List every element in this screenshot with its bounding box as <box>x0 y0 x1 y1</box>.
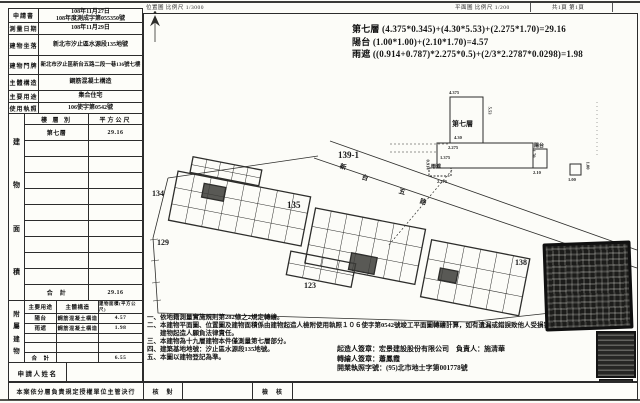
annex-cell: 鋼筋混凝土構造 <box>57 324 99 333</box>
area-header-floor: 樓 層 別 <box>25 114 89 124</box>
field-label: 建物坐落 <box>9 35 39 55</box>
field-value: 106使字第0542號 <box>39 103 142 113</box>
page-count-label: 共1頁 第1頁 <box>552 3 584 11</box>
area-cell-floor <box>25 269 89 284</box>
area-cell-sqm <box>89 189 142 204</box>
field-value: 新北市汐止區新台五路二段一巷136號七樓 <box>39 56 142 74</box>
area-table-row <box>25 269 142 285</box>
area-cell-sqm <box>89 221 142 236</box>
field-value: 鋼筋混凝土構造 <box>39 75 142 90</box>
calc-line: 第七層 (4.375*0.345)+(4.30*5.53)+(2.275*1.7… <box>352 23 638 36</box>
area-cell-sqm <box>89 205 142 220</box>
area-table-header: 樓 層 別平方公尺 <box>25 114 142 125</box>
annex-table-row: 合 計6.55 <box>25 353 142 362</box>
area-cell-floor: 第七層 <box>25 125 89 140</box>
annex-header-cell: 主要用途 <box>25 301 57 313</box>
calc-line: 陽台 (1.00*1.00)+(2.10*1.70)=4.57 <box>352 36 638 49</box>
area-cell-sqm <box>89 269 142 284</box>
area-cell-floor <box>25 157 89 172</box>
field-value-line: 集合住宅 <box>78 93 102 100</box>
area-cell-sqm <box>89 253 142 268</box>
annex-table-row: 陽台鋼筋混凝土構造4.57 <box>25 314 142 324</box>
area-table-row <box>25 237 142 253</box>
field-value-line: 106使字第0542號 <box>68 105 113 112</box>
area-cell-sqm <box>89 237 142 252</box>
area-cell-sqm: 29.16 <box>89 125 142 140</box>
side-label-char: 物 <box>13 345 20 355</box>
field-label: 建物門牌 <box>9 56 39 74</box>
field-value-line: 新北市汐止區新台五路二段一巷136號七樓 <box>41 62 141 69</box>
check-label: 核 對 <box>144 383 183 399</box>
annex-side-label: 附屬建物 <box>9 301 25 362</box>
area-table-row <box>25 221 142 237</box>
annex-cell <box>99 334 142 343</box>
floor-area-rows: 樓 層 別平方公尺第七層29.16合 計29.16 <box>25 114 142 300</box>
annex-table-row: 雨遮鋼筋混凝土構造1.98 <box>25 324 142 334</box>
field-row: 主體構造鋼筋混凝土構造 <box>9 75 142 91</box>
field-value: 108年11月27日108年度測成字第055350號 <box>39 9 142 22</box>
annex-cell: 4.57 <box>99 314 142 323</box>
annex-header-cell: 建物面積(平方公尺) <box>99 301 142 313</box>
note-line: 二、本建物平面圖、位置圖及建物面積係由建物起造人檢附使用執照１０６使字第0542… <box>147 322 595 330</box>
field-row: 建物坐落新北市汐止區水源段135地號 <box>9 35 142 56</box>
field-value: 集合住宅 <box>39 91 142 102</box>
area-table-row: 第七層29.16 <box>25 125 142 141</box>
field-value-line: 鋼筋混凝土構造 <box>69 79 111 86</box>
annex-rows: 主要用途主體構造建物面積(平方公尺)陽台鋼筋混凝土構造4.57雨遮鋼筋混凝土構造… <box>25 301 142 362</box>
annex-cell: 1.98 <box>99 324 142 333</box>
field-label: 申請書 <box>9 9 39 22</box>
field-label: 使用執照 <box>9 103 39 113</box>
area-cell-floor <box>25 141 89 156</box>
annex-building-table: 附屬建物 主要用途主體構造建物面積(平方公尺)陽台鋼筋混凝土構造4.57雨遮鋼筋… <box>9 301 142 363</box>
annex-table-header: 主要用途主體構造建物面積(平方公尺) <box>25 301 142 314</box>
area-calculation-block: 第七層 (4.375*0.345)+(4.30*5.53)+(2.275*1.7… <box>352 23 638 61</box>
location-map-scale-label: 位置圖 比例尺 1/3000 <box>146 3 204 11</box>
field-value-line: 108年度測成字第055350號 <box>56 16 125 23</box>
review-label: 檢 核 <box>253 383 293 399</box>
area-cell-floor <box>25 221 89 236</box>
annex-table-row <box>25 334 142 344</box>
annex-cell <box>99 343 142 352</box>
drawing-header-strip: 位置圖 比例尺 1/3000 平面圖 比例尺 1/200 共1頁 第1頁 <box>143 0 638 13</box>
area-cell-floor <box>25 189 89 204</box>
annex-cell: 合 計 <box>25 353 57 362</box>
area-table-row <box>25 157 142 173</box>
area-cell-sqm <box>89 157 142 172</box>
side-label-char: 積 <box>13 267 20 277</box>
footer-strip: 本案依分層負責規定授權單位主管決行 核 對 檢 核 <box>8 382 638 400</box>
note-line: 一、依地籍測量實施規則第282條之2規定轉繪。 <box>147 314 595 322</box>
field-value-line: 108年11月29日 <box>71 25 110 32</box>
annex-cell <box>57 334 99 343</box>
note-line: 建物起造人願負法律責任。 <box>147 330 595 338</box>
annex-cell: 雨遮 <box>25 324 57 333</box>
field-row: 使用執照106使字第0542號 <box>9 103 142 114</box>
floor-area-side-label: 建物面積 <box>9 114 25 300</box>
applicant-name-row: 申請人姓名 <box>9 363 142 383</box>
area-table-row <box>25 189 142 205</box>
signature-block: 起造人簽章：宏景建設股份有限公司 負責人：施清華轉繪人簽章：蕭鳳霞開業執照字號：… <box>337 345 587 374</box>
annex-table-row <box>25 343 142 353</box>
field-row: 建物門牌新北市汐止區新台五路二段一巷136號七樓 <box>9 56 142 75</box>
review-blank-box <box>293 383 637 399</box>
field-value: 新北市汐止區水源段135地號 <box>39 35 142 55</box>
annex-header-cell: 主體構造 <box>57 301 99 313</box>
field-value-line: 新北市汐止區水源段135地號 <box>53 42 128 49</box>
area-cell-floor <box>25 205 89 220</box>
area-table-row: 合 計29.16 <box>25 285 142 300</box>
area-table-row <box>25 253 142 269</box>
field-label: 主要用途 <box>9 91 39 102</box>
field-label: 測量日期 <box>9 23 39 34</box>
side-label-char: 建 <box>13 333 20 343</box>
registration-form-table: 申請書108年11月27日108年度測成字第055350號測量日期108年11月… <box>8 8 143 382</box>
official-seal-small <box>596 331 636 378</box>
scanned-building-survey-document: 位置圖 比例尺 1/3000 平面圖 比例尺 1/200 共1頁 第1頁 申請書… <box>0 0 640 403</box>
area-cell-floor <box>25 237 89 252</box>
field-row: 主要用途集合住宅 <box>9 91 142 103</box>
header-tick <box>612 3 613 12</box>
signer-line: 開業執照字號：(95)北市地士字第001778號 <box>337 364 587 374</box>
side-label-char: 附 <box>13 308 20 318</box>
side-label-char: 面 <box>13 224 20 234</box>
annex-cell <box>57 353 99 362</box>
area-cell-sqm <box>89 173 142 188</box>
field-value-line: 108年11月27日 <box>71 9 110 16</box>
header-tick <box>530 3 531 12</box>
area-table-row <box>25 173 142 189</box>
annex-cell: 6.55 <box>99 353 142 362</box>
applicant-name-label: 申請人姓名 <box>9 363 67 383</box>
signer-line: 轉繪人簽章：蕭鳳霞 <box>337 355 587 365</box>
area-cell-sqm: 29.16 <box>89 285 142 300</box>
side-label-char: 物 <box>13 180 20 190</box>
field-row: 測量日期108年11月29日 <box>9 23 142 35</box>
area-cell-floor: 合 計 <box>25 285 89 300</box>
plan-scale-label: 平面圖 比例尺 1/200 <box>455 3 510 11</box>
area-table-row <box>25 205 142 221</box>
signer-line: 起造人簽章：宏景建設股份有限公司 負責人：施清華 <box>337 345 587 355</box>
area-cell-sqm <box>89 141 142 156</box>
annex-cell <box>57 343 99 352</box>
annex-cell: 鋼筋混凝土構造 <box>57 314 99 323</box>
check-blank-box <box>183 383 253 399</box>
annex-cell <box>25 334 57 343</box>
side-label-char: 屬 <box>13 320 20 330</box>
area-cell-floor <box>25 173 89 188</box>
annex-cell: 陽台 <box>25 314 57 323</box>
calc-line: 雨遮 ((0.914+0.787)*2.275*0.5)+(2/3*2.2787… <box>352 48 638 61</box>
field-label: 主體構造 <box>9 75 39 90</box>
official-seal-large <box>542 240 633 331</box>
field-row: 申請書108年11月27日108年度測成字第055350號 <box>9 9 142 23</box>
area-cell-floor <box>25 253 89 268</box>
field-value: 108年11月29日 <box>39 23 142 34</box>
area-header-sqm: 平方公尺 <box>89 114 142 124</box>
floor-area-table: 建物面積 樓 層 別平方公尺第七層29.16合 計29.16 <box>9 114 142 301</box>
delegation-decision-text: 本案依分層負責規定授權單位主管決行 <box>9 383 144 399</box>
form-fields: 申請書108年11月27日108年度測成字第055350號測量日期108年11月… <box>9 9 142 114</box>
annex-cell <box>25 343 57 352</box>
area-table-row <box>25 141 142 157</box>
side-label-char: 建 <box>13 137 20 147</box>
